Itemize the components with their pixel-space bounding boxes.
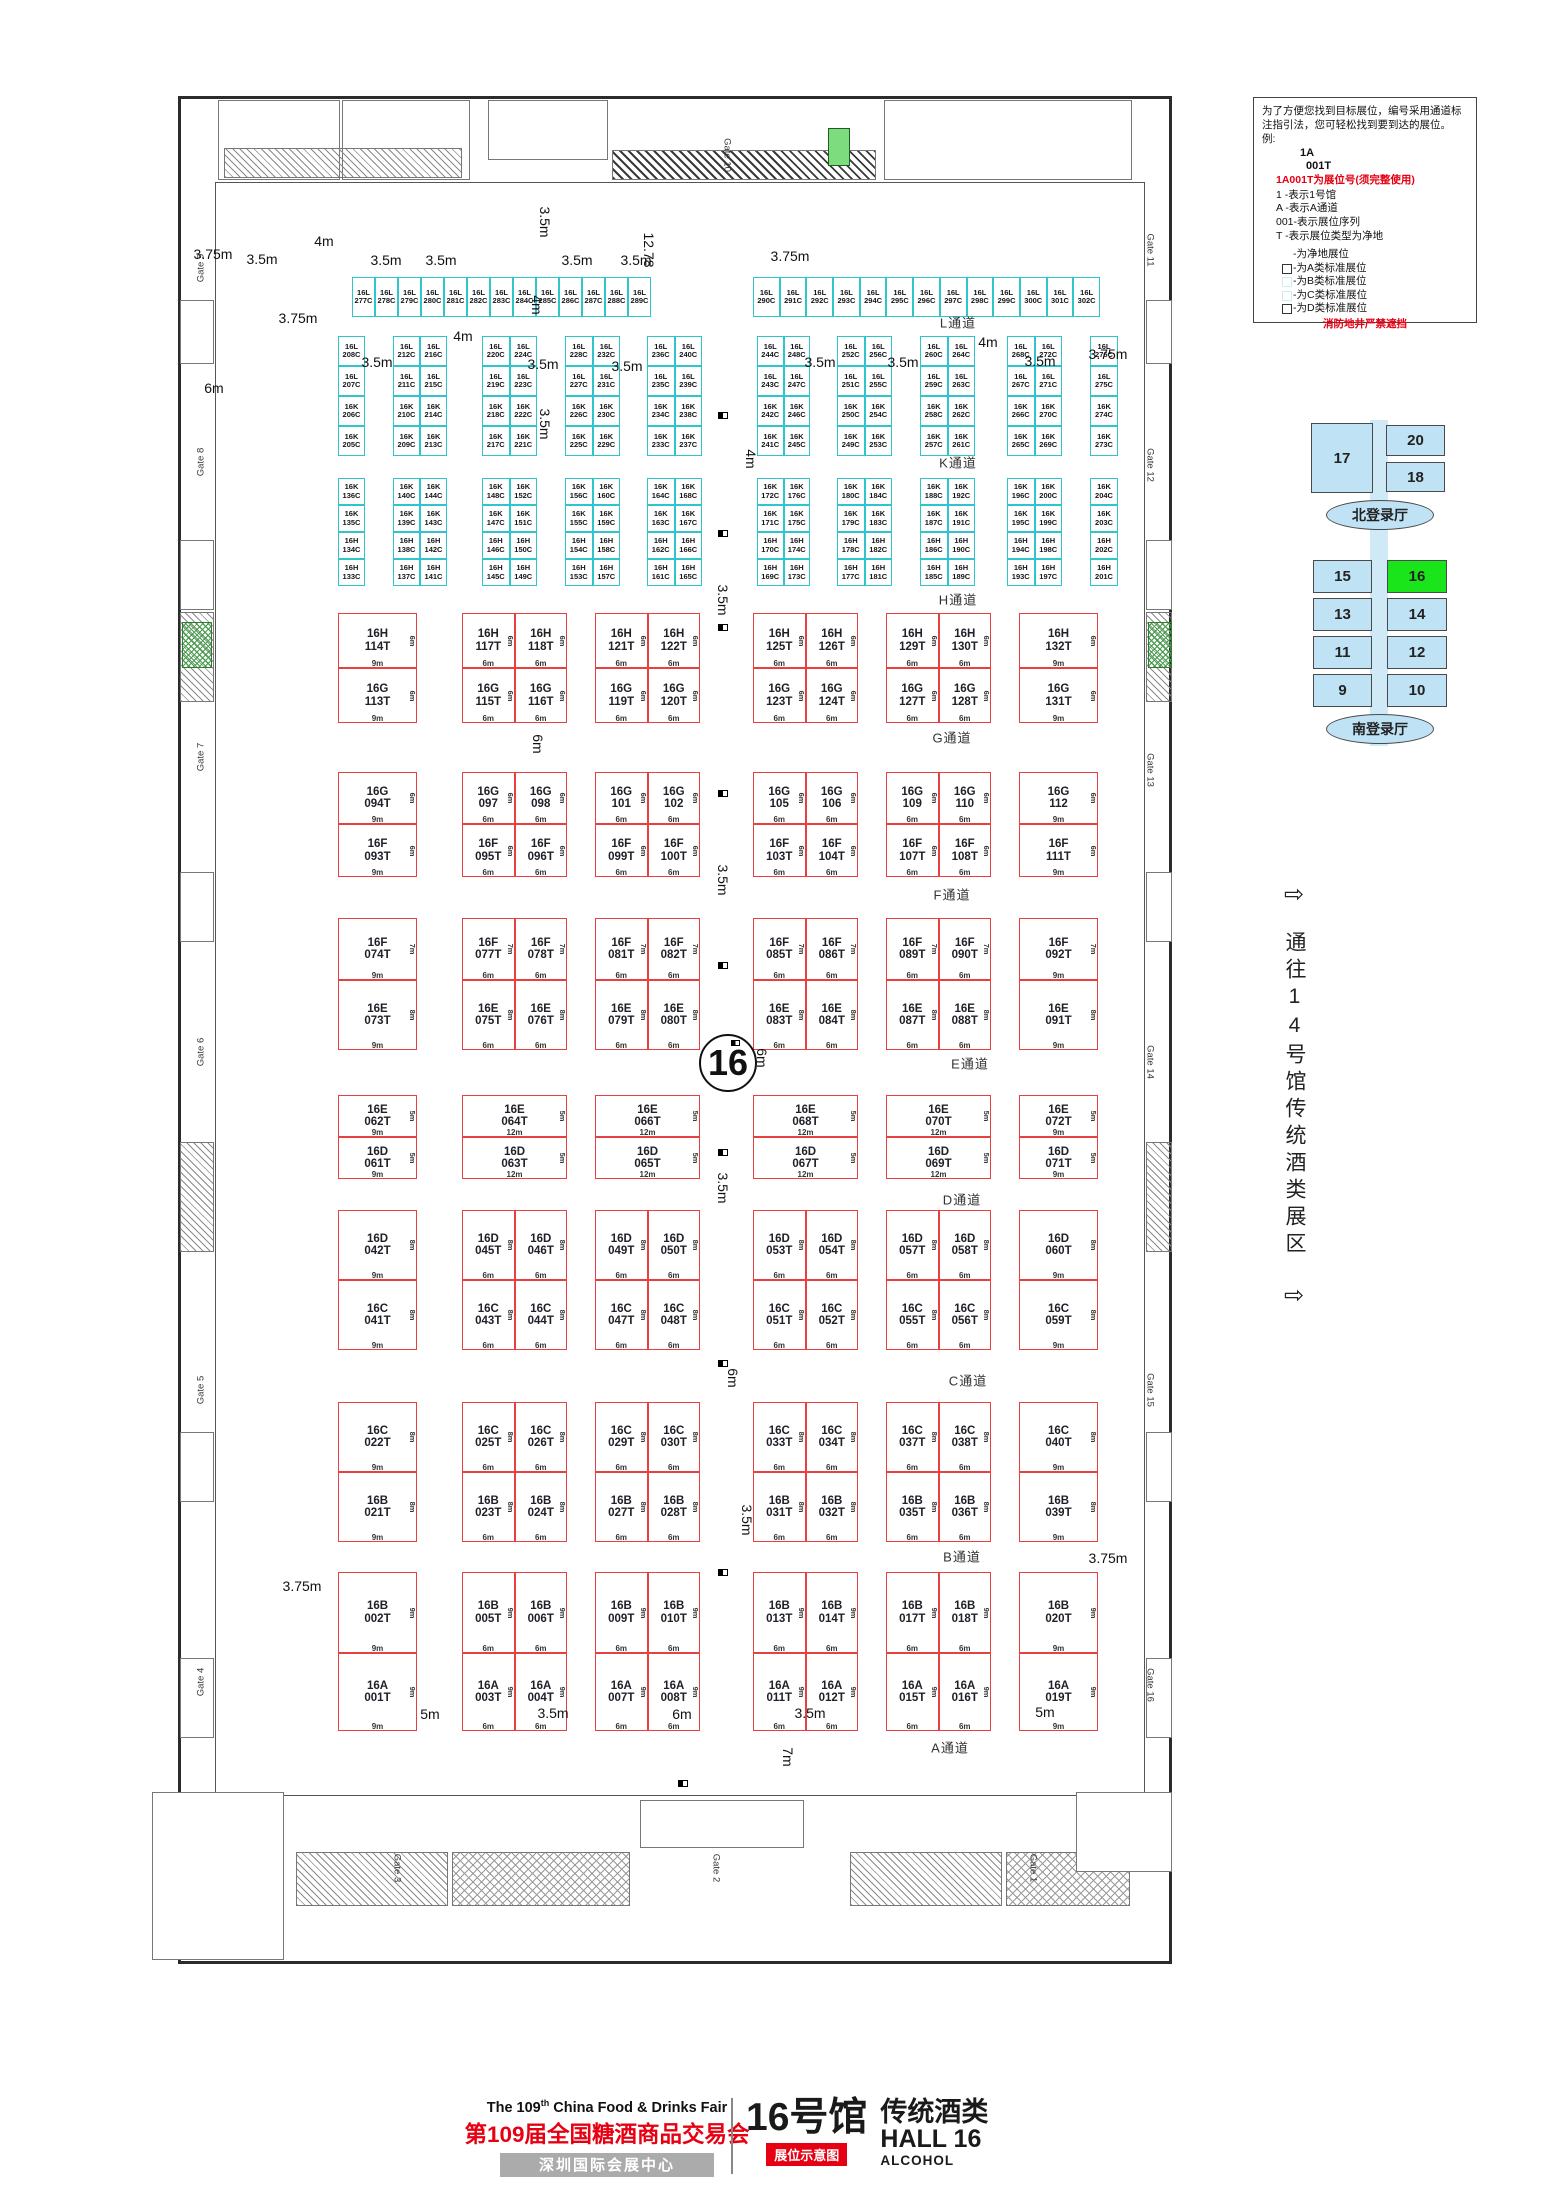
booth-16L259C: 16L 259C [920, 366, 948, 396]
booth-16K241C: 16K 241C [757, 426, 784, 456]
booth-code: 16L 219C [487, 373, 505, 390]
booth-width-label: 6m [535, 1644, 547, 1653]
booth-16H149C: 16H 149C [510, 559, 538, 586]
booth-width-label: 9m [1053, 714, 1065, 723]
booth-16L282C: 16L 282C [467, 277, 490, 317]
booth-height-label: 5m [1089, 1153, 1098, 1164]
booth-16D054T: 16D 054T6m8m [806, 1210, 859, 1280]
booth-code: 16L 248C [788, 343, 806, 360]
booth-16K175C: 16K 175C [784, 505, 811, 532]
booth-code: 16F 074T [364, 937, 390, 962]
booth-height-label: 8m [930, 1502, 939, 1513]
booth-code: 16E 091T [1045, 1003, 1071, 1028]
booth-height-label: 6m [1089, 635, 1098, 646]
booth-height-label: 8m [930, 1310, 939, 1321]
booth-height-label: 6m [849, 793, 858, 804]
booth-16K206C: 16K 206C [338, 396, 365, 426]
south-registration-hall: 南登录厅 [1326, 714, 1434, 744]
booth-code: 16H 137C [398, 564, 416, 581]
booth-width-label: 9m [1053, 1341, 1065, 1350]
booth-code: 16B 017T [899, 1600, 925, 1625]
booth-code: 16H 182C [869, 537, 887, 554]
booth-code: 16K 195C [1012, 510, 1030, 527]
booth-16B031T: 16B 031T6m8m [753, 1472, 806, 1542]
booth-16E087T: 16E 087T6m8m [886, 980, 939, 1050]
booth-code: 16G 112 [1048, 786, 1070, 811]
booth-16K164C: 16K 164C [647, 478, 675, 505]
fire-hydrant-icon [718, 1360, 728, 1367]
category-en: ALCOHOL [880, 2153, 988, 2168]
booth-height-label: 6m [797, 690, 806, 701]
booth-code: 16H 132T [1045, 628, 1071, 653]
booth-height-label: 5m [849, 1153, 858, 1164]
booth-16H170C: 16H 170C [757, 532, 784, 559]
booth-16C055T: 16C 055T6m8m [886, 1280, 939, 1350]
booth-code: 16L 271C [1039, 373, 1057, 390]
booth-height-label: 9m [1089, 1607, 1098, 1618]
gate-label: Gate 4 [196, 1668, 207, 1697]
booth-16K226C: 16K 226C [565, 396, 593, 426]
booth-16K184C: 16K 184C [865, 478, 893, 505]
booth-16C052T: 16C 052T6m8m [806, 1280, 859, 1350]
legend-example-bottom: 001T [1306, 160, 1468, 173]
measurement-label: 3.5m [527, 356, 558, 372]
booth-code: 16K 184C [869, 483, 887, 500]
booth-code: 16K 229C [597, 433, 615, 450]
booth-width-label: 6m [959, 1533, 971, 1542]
booth-code: 16B 018T [952, 1600, 978, 1625]
booth-code: 16K 234C [652, 403, 670, 420]
booth-width-label: 6m [959, 659, 971, 668]
booth-width-label: 6m [959, 714, 971, 723]
booth-code: 16H 194C [1012, 537, 1030, 554]
booth-16K179C: 16K 179C [837, 505, 865, 532]
booth-height-label: 5m [408, 1153, 417, 1164]
booth-16E083T: 16E 083T6m8m [753, 980, 806, 1050]
booth-16D058T: 16D 058T6m8m [939, 1210, 992, 1280]
booth-16H138C: 16H 138C [393, 532, 420, 559]
booth-width-label: 6m [826, 1533, 838, 1542]
booth-code: 16E 087T [899, 1003, 925, 1028]
booth-16L271C: 16L 271C [1035, 366, 1063, 396]
booth-width-label: 6m [906, 1271, 918, 1280]
booth-16G113T: 16G 113T9m6m [338, 668, 417, 723]
booth-code: 16F 104T [819, 838, 845, 863]
category-cn: 传统酒类 [880, 2098, 988, 2126]
booth-code: 16L 290C [757, 289, 775, 306]
fire-hydrant-icon [678, 1780, 688, 1787]
booth-16D067T: 16D 067T12m5m [753, 1137, 858, 1179]
booth-height-label: 6m [930, 793, 939, 804]
booth-code: 16G 119T [608, 683, 634, 708]
booth-height-label: 9m [849, 1607, 858, 1618]
booth-height-label: 9m [408, 1687, 417, 1698]
booth-code: 16K 200C [1039, 483, 1057, 500]
booth-16F104T: 16F 104T6m6m [806, 824, 859, 877]
legend-line: 1 -表示1号馆 [1276, 189, 1468, 203]
minimap-hall-10: 10 [1387, 674, 1447, 707]
booth-height-label: 8m [506, 1240, 515, 1251]
booth-16H158C: 16H 158C [593, 532, 621, 559]
legend-booth-types: -为净地展位 -为A类标准展位 -为B类标准展位 -为C类标准展位 -为D类标准… [1282, 248, 1468, 316]
booth-16H169C: 16H 169C [757, 559, 784, 586]
booth-code: 16L 288C [608, 289, 626, 306]
measurement-label: 3.5m [425, 252, 456, 268]
measurement-label: 4m [453, 328, 472, 344]
booth-code: 16F 093T [364, 838, 390, 863]
booth-height-label: 6m [408, 845, 417, 856]
booth-width-label: 6m [826, 1271, 838, 1280]
booth-height-label: 6m [691, 793, 700, 804]
booth-width-label: 6m [668, 714, 680, 723]
booth-code: 16L 279C [401, 289, 419, 306]
booth-16K230C: 16K 230C [593, 396, 621, 426]
booth-code: 16L 287C [585, 289, 603, 306]
booth-code: 16F 095T [475, 838, 501, 863]
booth-16B021T: 16B 021T9m8m [338, 1472, 417, 1542]
booth-16L260C: 16L 260C [920, 336, 948, 366]
booth-16L212C: 16L 212C [393, 336, 420, 366]
booth-code: 16K 191C [952, 510, 970, 527]
booth-width-label: 6m [668, 1644, 680, 1653]
booth-width-label: 9m [372, 1463, 384, 1472]
booth-width-label: 6m [615, 815, 627, 824]
measurement-label: 3.75m [1089, 1550, 1128, 1566]
booth-16G119T: 16G 119T6m6m [595, 668, 648, 723]
booth-16L277C: 16L 277C [352, 277, 375, 317]
booth-height-label: 9m [639, 1607, 648, 1618]
booth-16C040T: 16C 040T9m8m [1019, 1402, 1098, 1472]
booth-height-label: 8m [849, 1502, 858, 1513]
booth-16A019T: 16A 019T9m9m [1019, 1653, 1098, 1731]
booth-code: 16L 208C [343, 343, 361, 360]
booth-code: 16L 297C [944, 289, 962, 306]
booth-code: 16G 128T [952, 683, 978, 708]
booth-width-label: 6m [668, 1533, 680, 1542]
booth-code: 16H 190C [952, 537, 970, 554]
booth-16B020T: 16B 020T9m9m [1019, 1572, 1098, 1653]
booth-code: 16B 014T [819, 1600, 845, 1625]
booth-width-label: 6m [615, 1644, 627, 1653]
booth-code: 16F 111T [1046, 838, 1071, 863]
booth-16K237C: 16K 237C [675, 426, 703, 456]
booth-16H197C: 16H 197C [1035, 559, 1063, 586]
booth-code: 16E 070T [925, 1104, 951, 1129]
booth-height-label: 8m [1089, 1240, 1098, 1251]
booth-width-label: 6m [959, 868, 971, 877]
booth-width-label: 12m [639, 1170, 655, 1179]
booth-code: 16K 140C [398, 483, 416, 500]
booth-code: 16L 302C [1078, 289, 1096, 306]
booth-width-label: 6m [482, 1271, 494, 1280]
booth-code: 16G 115T [475, 683, 501, 708]
booth-16H141C: 16H 141C [420, 559, 447, 586]
booth-16E091T: 16E 091T9m8m [1019, 980, 1098, 1050]
booth-height-label: 8m [849, 1240, 858, 1251]
booth-16F095T: 16F 095T6m6m [462, 824, 515, 877]
booth-code: 16L 231C [597, 373, 615, 390]
measurement-label: 3.75m [279, 310, 318, 326]
booth-width-label: 6m [615, 868, 627, 877]
measurement-label: 12.78 [641, 232, 657, 267]
booth-height-label: 8m [558, 1432, 567, 1443]
booth-16H154C: 16H 154C [565, 532, 593, 559]
measurement-label: 3.5m [370, 252, 401, 268]
booth-height-label: 8m [408, 1310, 417, 1321]
measurement-label: 3.5m [611, 358, 642, 374]
booth-height-label: 8m [691, 1240, 700, 1251]
fair-title-en-sup: th [541, 2098, 550, 2108]
booth-width-label: 6m [535, 714, 547, 723]
booth-16L251C: 16L 251C [837, 366, 865, 396]
booth-16F093T: 16F 093T9m6m [338, 824, 417, 877]
booth-16H132T: 16H 132T9m6m [1019, 613, 1098, 668]
booth-width-label: 6m [773, 659, 785, 668]
booth-height-label: 6m [930, 690, 939, 701]
booth-16K205C: 16K 205C [338, 426, 365, 456]
measurement-label: 3.5m [794, 1705, 825, 1721]
booth-16H201C: 16H 201C [1090, 559, 1118, 586]
booth-16K155C: 16K 155C [565, 505, 593, 532]
booth-height-label: 6m [639, 690, 648, 701]
booth-16E076T: 16E 076T6m8m [515, 980, 568, 1050]
booth-code: 16E 075T [475, 1003, 501, 1028]
booth-16K253C: 16K 253C [865, 426, 893, 456]
booth-code: 16H 154C [570, 537, 588, 554]
booth-code: 16K 226C [570, 403, 588, 420]
booth-16G110: 16G 1106m6m [939, 772, 992, 824]
booth-code: 16D 067T [792, 1146, 818, 1171]
booth-16A003T: 16A 003T6m9m [462, 1653, 515, 1731]
booth-code: 16L 277C [355, 289, 373, 306]
booth-height-label: 8m [982, 1240, 991, 1251]
aisle-label: K通道 [939, 453, 977, 472]
booth-width-label: 6m [906, 868, 918, 877]
booth-code: 16K 152C [514, 483, 532, 500]
booth-code: 16H 174C [788, 537, 806, 554]
booth-height-label: 9m [506, 1687, 515, 1698]
fire-hydrant-icon [718, 412, 728, 419]
booth-width-label: 12m [506, 1128, 522, 1137]
booth-code: 16K 217C [487, 433, 505, 450]
booth-code: 16C 033T [766, 1425, 792, 1450]
booth-width-label: 6m [482, 1644, 494, 1653]
booth-code: 16C 051T [766, 1303, 792, 1328]
booth-16D061T: 16D 061T9m5m [338, 1137, 417, 1179]
booth-16K261C: 16K 261C [948, 426, 976, 456]
booth-code: 16D 049T [608, 1233, 634, 1258]
booth-16D045T: 16D 045T6m8m [462, 1210, 515, 1280]
booth-type-label: -为D类标准展位 [1293, 302, 1367, 316]
booth-height-label: 6m [408, 690, 417, 701]
booth-code: 16E 064T [501, 1104, 527, 1129]
booth-code: 16H 122T [661, 628, 687, 653]
booth-16B018T: 16B 018T6m9m [939, 1572, 992, 1653]
booth-height-label: 6m [797, 793, 806, 804]
booth-width-label: 6m [668, 1463, 680, 1472]
booth-code: 16H 189C [952, 564, 970, 581]
legend-line: 001-表示展位序列 [1276, 216, 1468, 230]
booth-width-label: 12m [797, 1128, 813, 1137]
booth-width-label: 6m [773, 1463, 785, 1472]
booth-code: 16B 039T [1045, 1495, 1071, 1520]
booth-code: 16F 103T [766, 838, 792, 863]
booth-code: 16H 193C [1012, 564, 1030, 581]
booth-width-label: 6m [615, 1533, 627, 1542]
booth-16B002T: 16B 002T9m9m [338, 1572, 417, 1653]
booth-height-label: 8m [1089, 1502, 1098, 1513]
booth-width-label: 9m [372, 1271, 384, 1280]
measurement-label: 3.5m [537, 206, 553, 237]
gate-label: Gate 8 [196, 448, 207, 477]
booth-16D063T: 16D 063T12m5m [462, 1137, 567, 1179]
booth-code: 16K 253C [869, 433, 887, 450]
booth-16K144C: 16K 144C [420, 478, 447, 505]
booth-16K183C: 16K 183C [865, 505, 893, 532]
booth-code: 16L 289C [631, 289, 649, 306]
booth-code: 16E 062T [364, 1104, 390, 1129]
booth-height-label: 7m [797, 944, 806, 955]
booth-16L264C: 16L 264C [948, 336, 976, 366]
booth-code: 16D 071T [1045, 1146, 1071, 1171]
booth-height-label: 9m [408, 1607, 417, 1618]
booth-16B017T: 16B 017T6m9m [886, 1572, 939, 1653]
booth-16G101: 16G 1016m6m [595, 772, 648, 824]
booth-16K172C: 16K 172C [757, 478, 784, 505]
measurement-label: 6m [672, 1706, 691, 1722]
booth-height-label: 9m [558, 1607, 567, 1618]
booth-width-label: 6m [906, 1041, 918, 1050]
booth-code: 16K 218C [487, 403, 505, 420]
booth-width-label: 6m [906, 971, 918, 980]
measurement-label: 3.5m [361, 354, 392, 370]
booth-code: 16H 121T [608, 628, 634, 653]
booth-width-label: 6m [615, 1041, 627, 1050]
booth-16B036T: 16B 036T6m8m [939, 1472, 992, 1542]
booth-16G109: 16G 1096m6m [886, 772, 939, 824]
booth-width-label: 6m [668, 1341, 680, 1350]
booth-height-label: 8m [797, 1432, 806, 1443]
booth-code: 16D 050T [661, 1233, 687, 1258]
booth-width-label: 6m [482, 971, 494, 980]
booth-16C025T: 16C 025T6m8m [462, 1402, 515, 1472]
aisle-label: L通道 [940, 313, 976, 332]
booth-code: 16K 183C [869, 510, 887, 527]
booth-16E079T: 16E 079T6m8m [595, 980, 648, 1050]
booth-width-label: 9m [372, 971, 384, 980]
booth-width-label: 6m [615, 714, 627, 723]
booth-16B006T: 16B 006T6m9m [515, 1572, 568, 1653]
booth-16H121T: 16H 121T6m6m [595, 613, 648, 668]
booth-16H114T: 16H 114T9m6m [338, 613, 417, 668]
booth-height-label: 8m [691, 1010, 700, 1021]
gate-label: Gate 14 [1145, 1045, 1156, 1079]
booth-code: 16K 187C [925, 510, 943, 527]
booth-width-label: 6m [535, 1341, 547, 1350]
booth-16G112: 16G 1129m6m [1019, 772, 1098, 824]
booth-code: 16G 123T [766, 683, 792, 708]
aisle-label: F通道 [934, 885, 971, 904]
booth-16L235C: 16L 235C [647, 366, 675, 396]
booth-code: 16K 209C [398, 433, 416, 450]
measurement-label: 3.5m [537, 1705, 568, 1721]
booth-height-label: 7m [691, 944, 700, 955]
booth-height-label: 6m [982, 635, 991, 646]
booth-16B039T: 16B 039T9m8m [1019, 1472, 1098, 1542]
fair-title-en-part: The 109 [487, 2100, 541, 2116]
booth-width-label: 9m [372, 1341, 384, 1350]
booth-16F078T: 16F 078T6m7m [515, 918, 568, 980]
arrow-right-icon: ⇨ [1284, 1281, 1304, 1310]
booth-16H153C: 16H 153C [565, 559, 593, 586]
booth-16C038T: 16C 038T6m8m [939, 1402, 992, 1472]
booth-height-label: 8m [408, 1240, 417, 1251]
booth-code: 16D 057T [899, 1233, 925, 1258]
measurement-label: 4m [529, 295, 545, 314]
booth-code: 16K 203C [1095, 510, 1113, 527]
booth-height-label: 6m [639, 845, 648, 856]
booth-height-label: 6m [930, 635, 939, 646]
booth-height-label: 6m [506, 793, 515, 804]
booth-code: 16L 256C [869, 343, 887, 360]
booth-code: 16E 084T [819, 1003, 845, 1028]
booth-code: 16L 292C [811, 289, 829, 306]
booth-code: 16K 156C [570, 483, 588, 500]
measurement-label: 3.5m [715, 584, 731, 615]
booth-16L290C: 16L 290C [753, 277, 780, 317]
measurement-label: 3.5m [1024, 353, 1055, 369]
booth-16H190C: 16H 190C [948, 532, 976, 559]
booth-type-label: -为B类标准展位 [1293, 275, 1367, 289]
gate-label: Gate 16 [1145, 1668, 1156, 1702]
booth-code: 16L 244C [761, 343, 779, 360]
booth-code: 16A 008T [661, 1680, 687, 1705]
booth-code: 16H 118T [528, 628, 554, 653]
booth-code: 16E 079T [608, 1003, 634, 1028]
booth-height-label: 6m [982, 690, 991, 701]
booth-code: 16L 263C [952, 373, 970, 390]
booth-code: 16A 015T [899, 1680, 925, 1705]
measurement-label: 4m [978, 334, 997, 350]
booth-16B014T: 16B 014T6m9m [806, 1572, 859, 1653]
booth-code: 16G 109 [901, 786, 923, 811]
booth-width-label: 6m [959, 1644, 971, 1653]
booth-height-label: 8m [408, 1502, 417, 1513]
booth-width-label: 6m [535, 1533, 547, 1542]
booth-16H125T: 16H 125T6m6m [753, 613, 806, 668]
gate-label: Gate 6 [196, 1038, 207, 1067]
booth-width-label: 6m [959, 1041, 971, 1050]
booth-code: 16L 260C [925, 343, 943, 360]
booth-code: 16F 078T [528, 937, 554, 962]
measurement-label: 3.5m [715, 864, 731, 895]
booth-code: 16H 141C [425, 564, 443, 581]
booth-16K254C: 16K 254C [865, 396, 893, 426]
hall-number: 16 [708, 1042, 748, 1084]
booth-height-label: 5m [558, 1111, 567, 1122]
fair-title-block: The 109th China Food & Drinks Fair 第109届… [496, 2098, 718, 2177]
gate-label: Gate 12 [1145, 448, 1156, 482]
minimap-hall-18: 18 [1386, 462, 1445, 492]
arrow-right-icon: ⇨ [1284, 880, 1304, 909]
booth-width-label: 6m [906, 714, 918, 723]
booth-code: 16L 300C [1024, 289, 1042, 306]
booth-code: 16K 210C [398, 403, 416, 420]
measurement-label: 7m [780, 1747, 796, 1766]
booth-width-label: 6m [773, 1722, 785, 1731]
booth-16D060T: 16D 060T9m8m [1019, 1210, 1098, 1280]
booth-16B009T: 16B 009T6m9m [595, 1572, 648, 1653]
